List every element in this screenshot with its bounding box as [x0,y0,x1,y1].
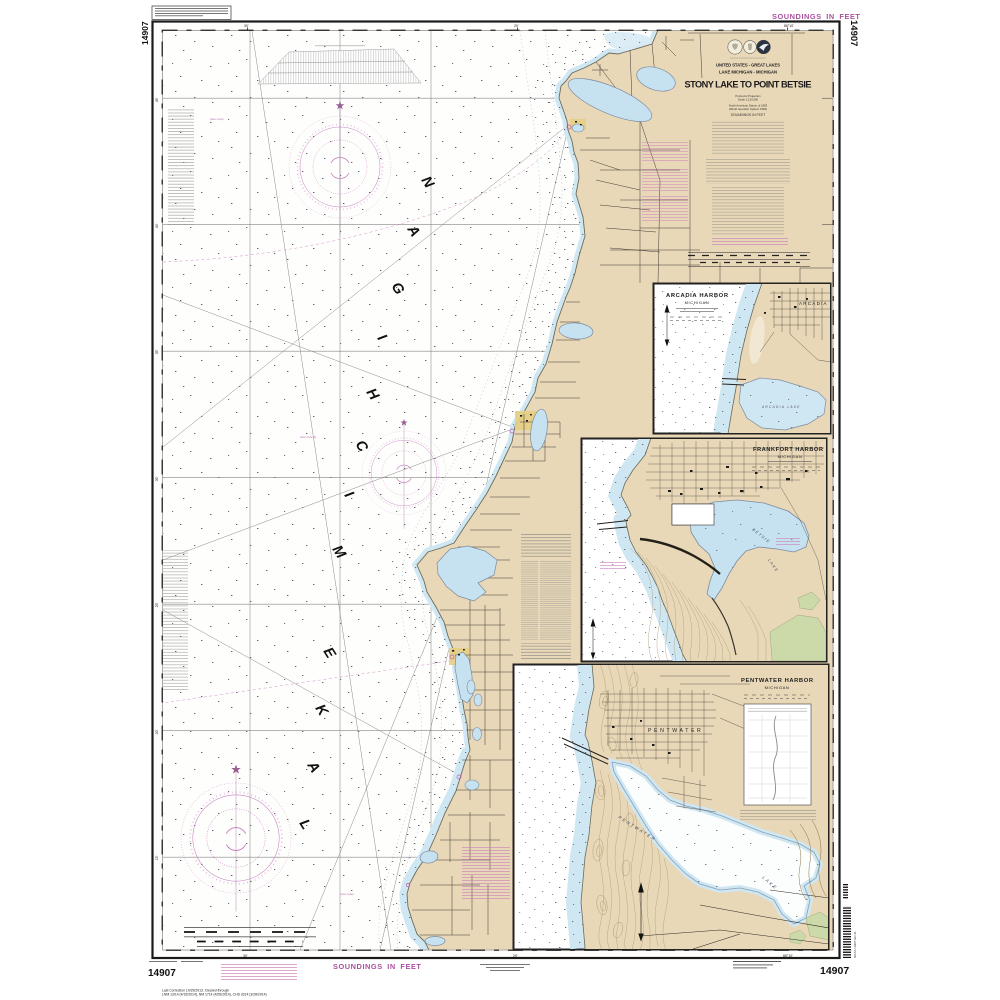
svg-text:20': 20' [513,954,518,958]
svg-text:ARCADIA HARBOR: ARCADIA HARBOR [666,293,729,299]
svg-text:SOUNDINGS IN FEET: SOUNDINGS IN FEET [772,12,861,21]
svg-text:PENTWATER: PENTWATER [648,728,703,734]
svg-text:MICHIGAN: MICHIGAN [778,454,803,459]
svg-text:SOUNDINGS IN FEET: SOUNDINGS IN FEET [333,962,422,971]
svg-text:PENTWATER HARBOR: PENTWATER HARBOR [741,678,814,684]
svg-text:MICHIGAN: MICHIGAN [685,300,710,305]
svg-text:FRANKFORT HARBOR: FRANKFORT HARBOR [753,447,824,453]
svg-text:Scale 1:120,000: Scale 1:120,000 [738,97,759,101]
svg-text:30': 30' [155,476,159,481]
svg-text:15': 15' [155,855,159,860]
svg-text:ARCADIA LAKE: ARCADIA LAKE [761,405,801,409]
svg-text:30': 30' [243,954,248,958]
svg-text:LAKE MICHIGAN - MICHIGAN: LAKE MICHIGAN - MICHIGAN [719,70,777,75]
svg-text:35': 35' [155,349,159,354]
svg-text:45': 45' [155,97,159,102]
svg-text:86°10': 86°10' [784,24,794,28]
svg-text:30': 30' [244,24,249,28]
svg-text:UNITED STATES - GREAT LAKES: UNITED STATES - GREAT LAKES [716,63,780,68]
svg-text:STONY LAKE TO POINT BETSIE: STONY LAKE TO POINT BETSIE [685,80,812,90]
svg-text:(see note A): (see note A) [300,435,316,439]
svg-text:20': 20' [155,729,159,734]
svg-text:NOAA 14907 ED 31: NOAA 14907 ED 31 [853,931,857,958]
svg-text:86°10': 86°10' [783,954,793,958]
svg-text:(World Geodetic System 1984): (World Geodetic System 1984) [729,107,767,111]
svg-text:SOUNDINGS IN FEET: SOUNDINGS IN FEET [731,113,765,117]
svg-text:14907: 14907 [820,965,849,977]
svg-text:14907: 14907 [140,21,150,45]
svg-text:25': 25' [155,602,159,607]
svg-text:40': 40' [155,223,159,228]
svg-text:LNM 13/14 (4/15/2014), NM 17: LNM 13/14 (4/15/2014), NM 1714 (4/26/201… [162,993,267,997]
svg-text:(see note): (see note) [340,892,354,896]
svg-text:14907: 14907 [848,20,859,46]
svg-text:14907: 14907 [148,968,176,979]
svg-text:20': 20' [514,24,519,28]
svg-text:(see note): (see note) [210,117,224,121]
svg-text:MICHIGAN: MICHIGAN [765,685,790,690]
svg-text:ARCADIA: ARCADIA [799,301,828,306]
